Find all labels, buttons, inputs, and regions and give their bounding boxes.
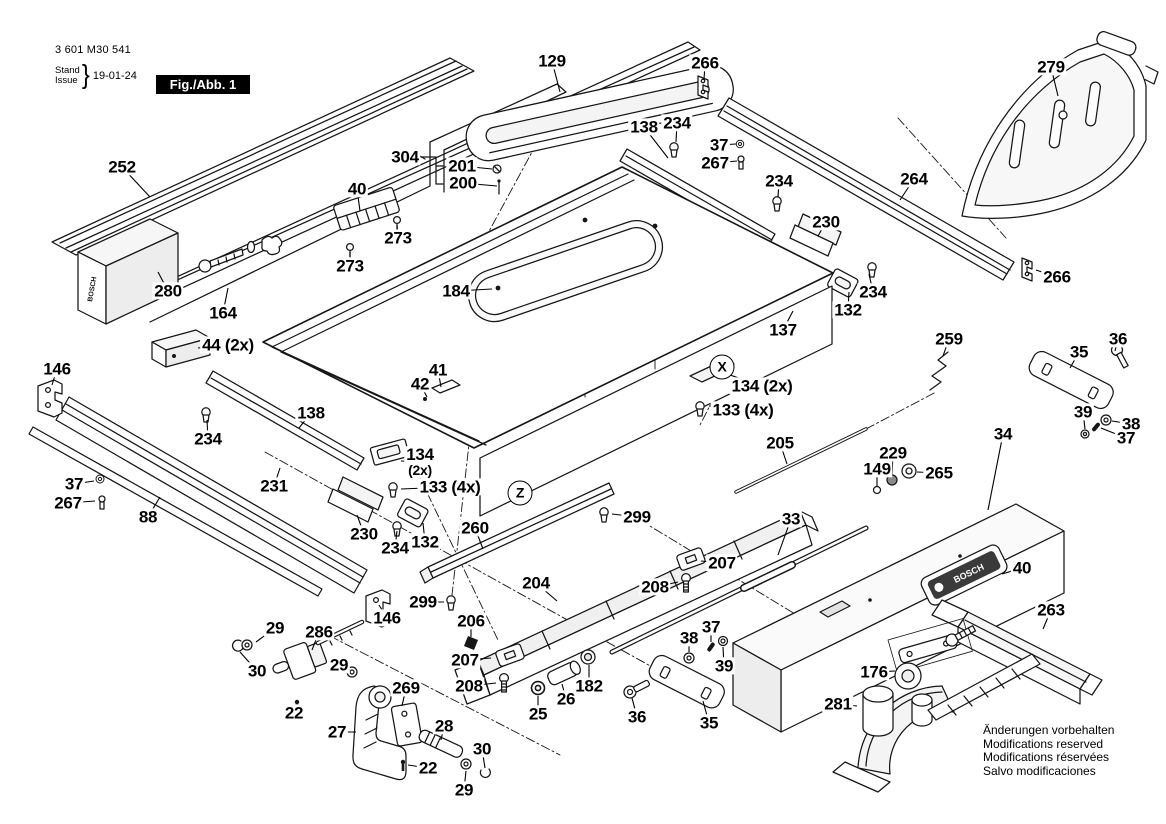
latch-44-shape: [152, 330, 210, 367]
issue-row: Stand Issue } 19-01-24: [55, 62, 137, 90]
screw-36-right-shape: [1110, 343, 1131, 370]
screw-36-bottom-shape: [622, 677, 652, 700]
notice-line-de: Änderungen vorbehalten: [983, 724, 1114, 738]
rail-231-shape: [56, 397, 367, 593]
clip-30-right-shape: [480, 769, 490, 777]
issue-date: 19-01-24: [93, 70, 137, 82]
screw-267-top-shape: [738, 156, 744, 169]
nut-39-right-shape: [1081, 430, 1089, 438]
clip-206-shape: [464, 636, 478, 650]
screw-22-a-shape: [295, 700, 299, 711]
parts-diagram-page: 3 601 M30 541 Stand Issue } 19-01-24 Fig…: [0, 0, 1166, 824]
notice-line-es: Salvo modificaciones: [983, 765, 1114, 779]
nut-39-bottom-shape: [719, 637, 728, 646]
bolt-164-shape: [199, 236, 282, 272]
exploded-diagram-canvas: BOSCH: [0, 0, 1166, 824]
wire-259-shape: [930, 352, 948, 390]
clamp-146-bottom-shape: [366, 590, 390, 627]
plate-269-shape: [391, 703, 423, 747]
blade-guard-279-shape: [962, 30, 1158, 218]
insert-129-shape: [462, 61, 738, 165]
bracket-132-left-shape: [397, 498, 429, 528]
pin-28-shape: [417, 729, 464, 759]
document-number: 3 601 M30 541: [55, 44, 137, 56]
screw-267-left-shape: [99, 496, 105, 509]
brace-glyph: }: [82, 61, 90, 92]
clamp-286-shape: [268, 622, 362, 686]
nut-182-shape: [581, 650, 595, 664]
figure-label: Fig./Abb. 1: [156, 75, 250, 94]
clamp-146-top-shape: [38, 380, 62, 417]
bracket-134-left-shape: [370, 439, 409, 466]
document-header: 3 601 M30 541 Stand Issue } 19-01-24: [55, 44, 137, 90]
strip-88-shape: [29, 427, 322, 596]
plates-230-right-shape: [790, 214, 841, 256]
notice-line-en: Modifications reserved: [983, 738, 1114, 752]
notice-line-fr: Modifications réservées: [983, 751, 1114, 765]
rod-205-shape: [736, 429, 866, 492]
modifications-notice: Änderungen vorbehalten Modifications res…: [983, 724, 1114, 778]
hardware-229-149-265-shape: [874, 464, 917, 494]
rail-138-left-shape: [206, 371, 364, 470]
plate-35-right-shape: [1026, 348, 1116, 411]
plates-230-left-shape: [328, 477, 383, 522]
clamp-266-right-shape: [1022, 258, 1032, 281]
stand-issue-label: Stand Issue: [55, 66, 80, 86]
